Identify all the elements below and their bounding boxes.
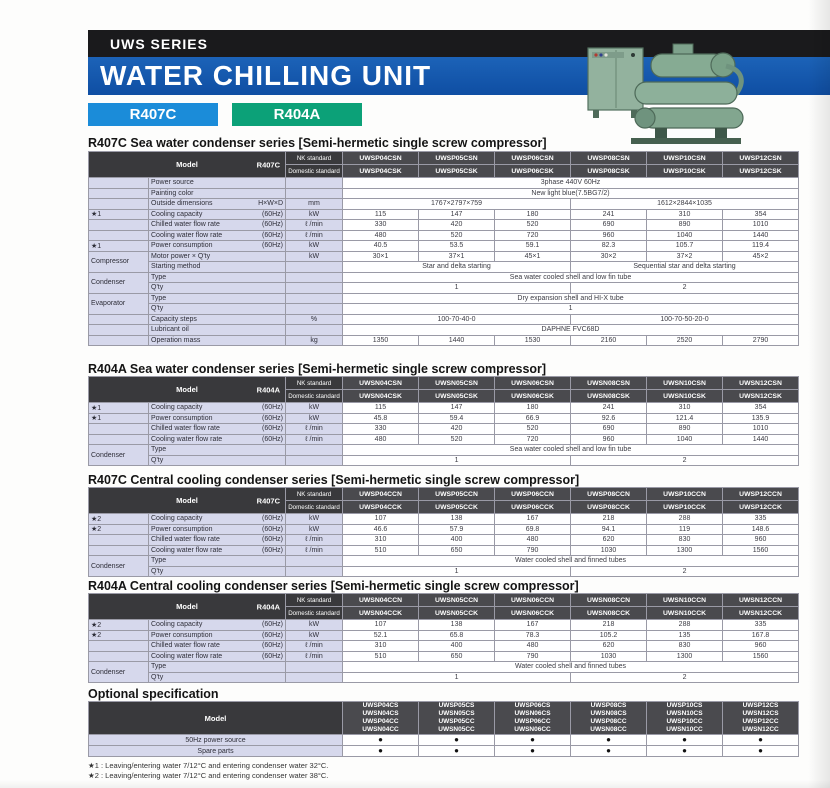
- spec-value: 310: [647, 209, 723, 220]
- model-name-domestic: UWSN10CSK: [647, 390, 723, 403]
- model-name-nk: UWSN04CSN: [343, 377, 419, 390]
- row-sublabel: (60Hz): [262, 404, 283, 411]
- model-name-nk: UWSN10CCN: [647, 594, 723, 607]
- model-name-domestic: UWSP10CCK: [647, 501, 723, 514]
- optional-model-name: UWSN06CS: [497, 710, 568, 718]
- spec-value: 46.6: [343, 524, 419, 535]
- row-label: Type: [149, 556, 286, 567]
- spec-value: 1612×2844×1035: [571, 199, 799, 210]
- model-name-domestic: UWSP12CSK: [723, 165, 799, 178]
- spec-value: 1: [343, 455, 571, 466]
- row-star-mark: [89, 230, 149, 241]
- row-group-label: Evaporator: [89, 293, 149, 314]
- model-name-domestic: UWSP06CCK: [495, 501, 571, 514]
- row-label-text: Outside dimensions: [151, 200, 212, 207]
- spec-value: 1: [343, 304, 799, 315]
- spec-value: 288: [647, 514, 723, 525]
- spec-value: 288: [647, 620, 723, 631]
- optional-model-header: Model: [89, 702, 343, 735]
- model-name-nk: UWSN05CSN: [419, 377, 495, 390]
- availability-dot: ●: [495, 746, 571, 757]
- spec-value: 1: [343, 566, 571, 577]
- row-unit: [286, 672, 343, 683]
- row-star-mark: [89, 178, 149, 189]
- spec-value: 520: [419, 230, 495, 241]
- spec-value: 960: [571, 434, 647, 445]
- spec-value: 1: [343, 672, 571, 683]
- row-label-text: Cooling capacity: [151, 621, 202, 628]
- model-label: Model: [176, 160, 198, 169]
- row-label: Q'ty: [149, 566, 286, 577]
- row-label: Q'ty: [149, 304, 286, 315]
- spec-value: 121.4: [647, 413, 723, 424]
- nk-standard-label: NK standard: [286, 377, 343, 390]
- optional-model-name: UWSP08CS: [573, 702, 644, 710]
- row-label: Cooling water flow rate(60Hz): [149, 434, 286, 445]
- row-unit: ℓ /min: [286, 535, 343, 546]
- row-label-text: Chilled water flow rate: [151, 536, 220, 543]
- optional-model-name: UWSN08CC: [573, 726, 644, 734]
- row-sublabel: (60Hz): [262, 425, 283, 432]
- spec-value: 241: [571, 209, 647, 220]
- row-unit: [286, 662, 343, 673]
- section-title-3: R407C Central cooling condenser series […: [88, 473, 579, 487]
- spec-table: ModelR407CNK standardUWSP04CSNUWSP05CSNU…: [88, 151, 799, 346]
- optional-model-name: UWSP10CC: [649, 718, 720, 726]
- optional-model-name: UWSN04CC: [345, 726, 416, 734]
- row-label: Cooling capacity(60Hz): [149, 403, 286, 414]
- spec-value: 330: [343, 424, 419, 435]
- row-label-text: Cooling capacity: [151, 404, 202, 411]
- spec-value: Star and delta starting: [343, 262, 571, 273]
- spec-value: 620: [571, 641, 647, 652]
- row-star-mark: ★1: [89, 403, 149, 414]
- row-unit: ℓ /min: [286, 220, 343, 231]
- series-label: UWS SERIES: [88, 36, 208, 52]
- spec-value: 1300: [647, 651, 723, 662]
- spec-value: 1010: [723, 424, 799, 435]
- row-sublabel: (60Hz): [262, 632, 283, 639]
- spec-value: 354: [723, 403, 799, 414]
- model-name-domestic: UWSP08CSK: [571, 165, 647, 178]
- spec-value: 3phase 440V 60Hz: [343, 178, 799, 189]
- row-label-text: Chilled water flow rate: [151, 221, 220, 228]
- spec-value: 1040: [647, 230, 723, 241]
- spec-value: 620: [571, 535, 647, 546]
- section-title-1: R407C Sea water condenser series [Semi-h…: [88, 136, 547, 150]
- availability-dot: ●: [343, 746, 419, 757]
- model-name-domestic: UWSN05CCK: [419, 607, 495, 620]
- spec-value: 830: [647, 641, 723, 652]
- spec-value: 1560: [723, 651, 799, 662]
- spec-value: 57.9: [419, 524, 495, 535]
- row-label-text: Power consumption: [151, 632, 212, 639]
- spec-value: 330: [343, 220, 419, 231]
- domestic-standard-label: Domestic standard: [286, 607, 343, 620]
- page-edge-shadow: [808, 0, 830, 788]
- row-label: Type: [149, 272, 286, 283]
- row-star-mark: ★1: [89, 241, 149, 252]
- row-star-mark: [89, 651, 149, 662]
- spec-value: 2: [571, 455, 799, 466]
- spec-value: 1300: [647, 545, 723, 556]
- spec-value: 40.5: [343, 241, 419, 252]
- row-label: Outside dimensionsH×W×D: [149, 199, 286, 210]
- spec-value: 180: [495, 403, 571, 414]
- spec-value: 420: [419, 424, 495, 435]
- model-name-nk: UWSN08CSN: [571, 377, 647, 390]
- row-unit: [286, 304, 343, 315]
- row-sublabel: (60Hz): [262, 415, 283, 422]
- model-name-nk: UWSN08CCN: [571, 594, 647, 607]
- row-label-text: Starting method: [151, 263, 200, 270]
- model-name-domestic: UWSP06CSK: [495, 165, 571, 178]
- spec-value: Water cooled shell and finned tubes: [343, 556, 799, 567]
- model-name-domestic: UWSP12CCK: [723, 501, 799, 514]
- spec-value: 400: [419, 641, 495, 652]
- section-title-optional: Optional specification: [88, 687, 219, 701]
- optional-table: ModelUWSP04CSUWSN04CSUWSP04CCUWSN04CCUWS…: [88, 701, 799, 757]
- row-unit: kW: [286, 241, 343, 252]
- row-star-mark: [89, 199, 149, 210]
- row-unit: [286, 293, 343, 304]
- row-star-mark: [89, 325, 149, 336]
- row-label: Q'ty: [149, 672, 286, 683]
- spec-value: 82.3: [571, 241, 647, 252]
- row-label-text: Chilled water flow rate: [151, 642, 220, 649]
- model-name-nk: UWSN12CCN: [723, 594, 799, 607]
- model-name-domestic: UWSN06CSK: [495, 390, 571, 403]
- optional-model-name: UWSP12CS: [725, 702, 796, 710]
- spec-table-r404a-central: ModelR404ANK standardUWSN04CCNUWSN05CCNU…: [88, 593, 799, 683]
- model-name-nk: UWSP08CSN: [571, 152, 647, 165]
- model-name-nk: UWSN10CSN: [647, 377, 723, 390]
- row-unit: [286, 262, 343, 273]
- row-unit: [286, 272, 343, 283]
- spec-value: 138: [419, 620, 495, 631]
- refrigerant-label: R404A: [257, 385, 280, 394]
- row-sublabel: (60Hz): [262, 526, 283, 533]
- spec-table: ModelR404ANK standardUWSN04CCNUWSN05CCNU…: [88, 593, 799, 683]
- spec-value: 1030: [571, 651, 647, 662]
- spec-value: 1440: [723, 230, 799, 241]
- spec-value: New light blue(7.5BG7/2): [343, 188, 799, 199]
- spec-value: 960: [571, 230, 647, 241]
- spec-value: 510: [343, 651, 419, 662]
- spec-value: 135.9: [723, 413, 799, 424]
- model-label: Model: [176, 602, 198, 611]
- domestic-standard-label: Domestic standard: [286, 390, 343, 403]
- model-name-nk: UWSP12CSN: [723, 152, 799, 165]
- spec-value: 690: [571, 424, 647, 435]
- row-star-mark: [89, 424, 149, 435]
- spec-value: 167.8: [723, 630, 799, 641]
- spec-value: Sea water cooled shell and low fin tube: [343, 272, 799, 283]
- row-unit: [286, 556, 343, 567]
- optional-model-name: UWSP05CS: [421, 702, 492, 710]
- row-star-mark: [89, 188, 149, 199]
- row-label-text: Q'ty: [151, 305, 163, 312]
- spec-value: 105.7: [647, 241, 723, 252]
- model-name-nk: UWSP05CCN: [419, 488, 495, 501]
- row-group-label: Condenser: [89, 445, 149, 466]
- section-title-4: R404A Central cooling condenser series […: [88, 579, 579, 593]
- row-unit: [286, 178, 343, 189]
- footnote-2: ★2 : Leaving/entering water 7/12°C and e…: [88, 771, 328, 780]
- row-label: Painting color: [149, 188, 286, 199]
- optional-model-name: UWSP04CS: [345, 702, 416, 710]
- row-star-mark: [89, 335, 149, 346]
- model-header-cell: ModelR404A: [89, 377, 286, 403]
- row-label: Capacity steps: [149, 314, 286, 325]
- spec-value: 830: [647, 535, 723, 546]
- row-star-mark: [89, 545, 149, 556]
- optional-model-column: UWSP05CSUWSN05CSUWSP05CCUWSN05CC: [419, 702, 495, 735]
- nk-standard-label: NK standard: [286, 594, 343, 607]
- refrigerant-label: R407C: [257, 496, 280, 505]
- row-star-mark: ★2: [89, 620, 149, 631]
- spec-value: 480: [343, 230, 419, 241]
- row-group-label: Condenser: [89, 556, 149, 577]
- model-name-nk: UWSP10CCN: [647, 488, 723, 501]
- spec-value: 690: [571, 220, 647, 231]
- row-unit: [286, 455, 343, 466]
- section-title-2: R404A Sea water condenser series [Semi-h…: [88, 362, 546, 376]
- spec-value: 1010: [723, 220, 799, 231]
- model-name-nk: UWSN06CCN: [495, 594, 571, 607]
- spec-value: 167: [495, 514, 571, 525]
- row-unit: ℓ /min: [286, 651, 343, 662]
- spec-value: 1040: [647, 434, 723, 445]
- refrigerant-label: R407C: [257, 160, 280, 169]
- availability-dot: ●: [495, 735, 571, 746]
- row-sublabel: (60Hz): [262, 642, 283, 649]
- model-header-cell: ModelR407C: [89, 152, 286, 178]
- spec-value: 520: [419, 434, 495, 445]
- optional-model-column: UWSP08CSUWSN08CSUWSP08CCUWSN08CC: [571, 702, 647, 735]
- row-label: Q'ty: [149, 283, 286, 294]
- row-label: Cooling capacity(60Hz): [149, 209, 286, 220]
- row-star-mark: [89, 434, 149, 445]
- spec-value: 480: [495, 535, 571, 546]
- spec-value: 790: [495, 545, 571, 556]
- spec-value: 138: [419, 514, 495, 525]
- row-label: Chilled water flow rate(60Hz): [149, 535, 286, 546]
- row-sublabel: (60Hz): [262, 436, 283, 443]
- spec-value: 37×1: [419, 251, 495, 262]
- spec-value: 167: [495, 620, 571, 631]
- optional-model-name: UWSN10CS: [649, 710, 720, 718]
- spec-value: 420: [419, 220, 495, 231]
- row-unit: kW: [286, 524, 343, 535]
- optional-model-column: UWSP10CSUWSN10CSUWSP10CCUWSN10CC: [647, 702, 723, 735]
- spec-value: 480: [343, 434, 419, 445]
- optional-model-name: UWSN05CS: [421, 710, 492, 718]
- spec-value: 480: [495, 641, 571, 652]
- row-star-mark: ★1: [89, 413, 149, 424]
- row-label-text: Power consumption: [151, 242, 212, 249]
- spec-value: 520: [495, 220, 571, 231]
- model-label: Model: [176, 385, 198, 394]
- row-unit: [286, 566, 343, 577]
- row-unit: kW: [286, 251, 343, 262]
- row-label-text: Power consumption: [151, 526, 212, 533]
- optional-model-name: UWSP06CS: [497, 702, 568, 710]
- chiller-product-image: [573, 20, 750, 148]
- availability-dot: ●: [647, 735, 723, 746]
- row-label-text: Type: [151, 274, 166, 281]
- optional-row-label: Spare parts: [89, 746, 343, 757]
- spec-value: 37×2: [647, 251, 723, 262]
- spec-value: 1: [343, 283, 571, 294]
- spec-value: 2: [571, 672, 799, 683]
- model-name-nk: UWSP06CCN: [495, 488, 571, 501]
- spec-value: 2160: [571, 335, 647, 346]
- spec-value: 335: [723, 514, 799, 525]
- row-label: Motor power × Q'ty: [149, 251, 286, 262]
- spec-value: 400: [419, 535, 495, 546]
- row-unit: kW: [286, 630, 343, 641]
- row-star-mark: [89, 314, 149, 325]
- row-label: Power consumption(60Hz): [149, 630, 286, 641]
- model-name-domestic: UWSN04CSK: [343, 390, 419, 403]
- row-label-text: Type: [151, 295, 166, 302]
- row-label-text: Cooling water flow rate: [151, 436, 222, 443]
- model-name-domestic: UWSN05CSK: [419, 390, 495, 403]
- model-name-domestic: UWSN06CCK: [495, 607, 571, 620]
- model-name-nk: UWSP06CSN: [495, 152, 571, 165]
- refrigerant-tag-r407c: R407C: [88, 103, 218, 126]
- row-label-text: Cooling capacity: [151, 211, 202, 218]
- spec-value: 218: [571, 514, 647, 525]
- row-sublabel: (60Hz): [262, 232, 283, 239]
- spec-value: 115: [343, 209, 419, 220]
- model-name-nk: UWSP08CCN: [571, 488, 647, 501]
- optional-model-name: UWSN12CC: [725, 726, 796, 734]
- optional-model-name: UWSP05CC: [421, 718, 492, 726]
- row-label-text: Q'ty: [151, 284, 163, 291]
- spec-value: Sequential star and delta starting: [571, 262, 799, 273]
- spec-value: 105.2: [571, 630, 647, 641]
- row-label-text: Cooling water flow rate: [151, 547, 222, 554]
- spec-value: 59.1: [495, 241, 571, 252]
- row-unit: kW: [286, 209, 343, 220]
- spec-table: ModelR407CNK standardUWSP04CCNUWSP05CCNU…: [88, 487, 799, 577]
- model-name-nk: UWSN05CCN: [419, 594, 495, 607]
- spec-value: 1530: [495, 335, 571, 346]
- spec-value: 59.4: [419, 413, 495, 424]
- model-name-domestic: UWSN12CCK: [723, 607, 799, 620]
- spec-value: 119: [647, 524, 723, 535]
- spec-value: 52.1: [343, 630, 419, 641]
- row-unit: kg: [286, 335, 343, 346]
- spec-value: 354: [723, 209, 799, 220]
- row-label-text: Painting color: [151, 190, 193, 197]
- model-name-nk: UWSN12CSN: [723, 377, 799, 390]
- row-label: Power consumption(60Hz): [149, 524, 286, 535]
- nk-standard-label: NK standard: [286, 152, 343, 165]
- spec-value: 2520: [647, 335, 723, 346]
- spec-value: 310: [647, 403, 723, 414]
- spec-table: ModelR404ANK standardUWSN04CSNUWSN05CSNU…: [88, 376, 799, 466]
- row-sublabel: (60Hz): [262, 515, 283, 522]
- row-unit: kW: [286, 620, 343, 631]
- availability-dot: ●: [571, 735, 647, 746]
- row-unit: kW: [286, 514, 343, 525]
- optional-model-column: UWSP06CSUWSN06CSUWSP06CCUWSN06CC: [495, 702, 571, 735]
- row-sublabel: (60Hz): [262, 242, 283, 249]
- row-label-text: Type: [151, 663, 166, 670]
- spec-value: 720: [495, 230, 571, 241]
- spec-value: DAPHNE FVC68D: [343, 325, 799, 336]
- row-label-text: Motor power × Q'ty: [151, 253, 210, 260]
- catalog-page: UWS SERIES WATER CHILLING UNIT R407C R40…: [0, 0, 830, 788]
- row-label-text: Chilled water flow rate: [151, 425, 220, 432]
- spec-value: 45×2: [723, 251, 799, 262]
- footnote-1: ★1 : Leaving/entering water 7/12°C and e…: [88, 761, 328, 770]
- row-unit: ℓ /min: [286, 434, 343, 445]
- row-label: Cooling capacity(60Hz): [149, 514, 286, 525]
- spec-value: 720: [495, 434, 571, 445]
- row-label: Q'ty: [149, 455, 286, 466]
- optional-model-column: UWSP12CSUWSN12CSUWSP12CCUWSN12CC: [723, 702, 799, 735]
- row-label-text: Q'ty: [151, 568, 163, 575]
- row-label: Cooling capacity(60Hz): [149, 620, 286, 631]
- row-label: Starting method: [149, 262, 286, 273]
- spec-value: 310: [343, 535, 419, 546]
- row-unit: kW: [286, 403, 343, 414]
- availability-dot: ●: [723, 735, 799, 746]
- row-label: Cooling water flow rate(60Hz): [149, 545, 286, 556]
- spec-value: 1767×2797×759: [343, 199, 571, 210]
- spec-value: 310: [343, 641, 419, 652]
- row-sublabel: (60Hz): [262, 221, 283, 228]
- model-name-nk: UWSP04CSN: [343, 152, 419, 165]
- model-name-domestic: UWSN08CCK: [571, 607, 647, 620]
- spec-value: 69.8: [495, 524, 571, 535]
- spec-table-r407c-sea: ModelR407CNK standardUWSP04CSNUWSP05CSNU…: [88, 151, 799, 346]
- model-name-domestic: UWSN08CSK: [571, 390, 647, 403]
- spec-value: 135: [647, 630, 723, 641]
- row-star-mark: ★1: [89, 209, 149, 220]
- row-unit: %: [286, 314, 343, 325]
- spec-value: 335: [723, 620, 799, 631]
- row-unit: [286, 445, 343, 456]
- model-label: Model: [176, 496, 198, 505]
- spec-value: 1440: [723, 434, 799, 445]
- model-name-domestic: UWSP04CSK: [343, 165, 419, 178]
- row-label-text: Type: [151, 557, 166, 564]
- row-group-label: Condenser: [89, 272, 149, 293]
- spec-value: 107: [343, 620, 419, 631]
- nk-standard-label: NK standard: [286, 488, 343, 501]
- spec-value: 960: [723, 535, 799, 546]
- row-label-text: Operation mass: [151, 337, 200, 344]
- spec-table-r404a-sea: ModelR404ANK standardUWSN04CSNUWSN05CSNU…: [88, 376, 799, 466]
- row-star-mark: [89, 641, 149, 652]
- row-label-text: Power source: [151, 179, 194, 186]
- row-star-mark: ★2: [89, 630, 149, 641]
- availability-dot: ●: [343, 735, 419, 746]
- optional-model-name: UWSN05CC: [421, 726, 492, 734]
- row-label-text: Power consumption: [151, 415, 212, 422]
- row-sublabel: H×W×D: [258, 200, 283, 207]
- row-label: Lubricant oil: [149, 325, 286, 336]
- spec-value: 100-70-50-20-0: [571, 314, 799, 325]
- model-header-cell: ModelR407C: [89, 488, 286, 514]
- spec-value: 218: [571, 620, 647, 631]
- row-unit: kW: [286, 413, 343, 424]
